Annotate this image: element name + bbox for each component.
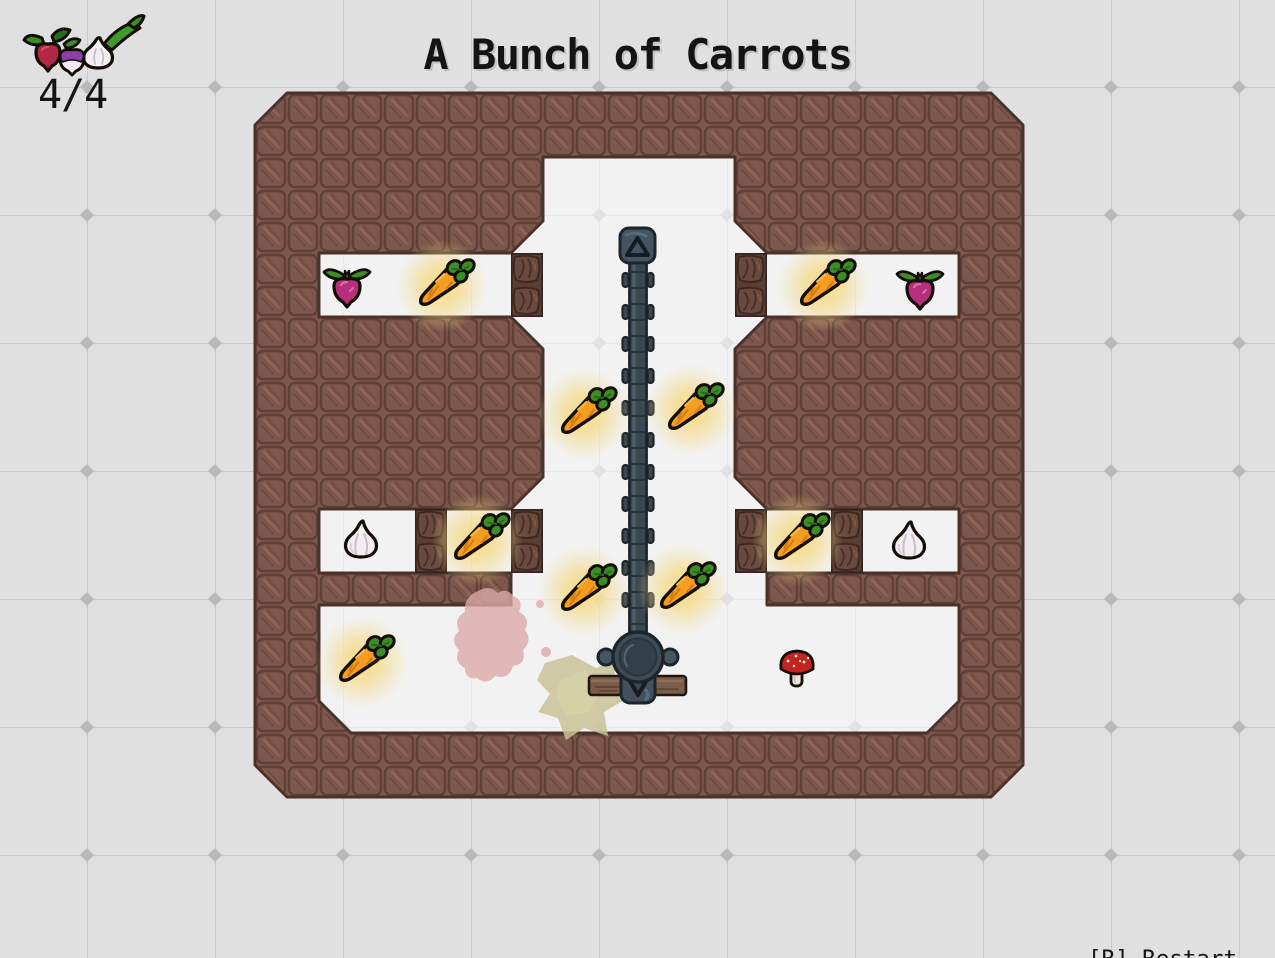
restart-hint: [R] Restart [1088,943,1237,958]
game-screen: A Bunch of Carrots 4/4 [R] Restart [T] S… [0,0,1275,958]
splat-pink-dot [541,647,551,657]
breakable-block [512,254,542,316]
carrot-cell-left [431,494,523,586]
carrot-shaft-lower-right [637,543,729,635]
breakable-block [736,254,766,316]
carrot-corridor-left [396,240,488,332]
carrot-shaft-lower-left [538,545,630,637]
keyboard-hints: [R] Restart [T] Skip [1088,878,1237,958]
game-canvas [0,0,1275,958]
carrot-shaft-upper-left [538,368,630,460]
carrot-corridor-right [777,240,869,332]
carrot-shaft-upper-right [645,364,737,456]
level-title: A Bunch of Carrots [0,30,1275,79]
carrot-cell-right [751,494,843,586]
anchor-block [620,228,655,263]
collect-counter: 4/4 [38,72,107,118]
carrot-bottom-left [316,616,408,708]
